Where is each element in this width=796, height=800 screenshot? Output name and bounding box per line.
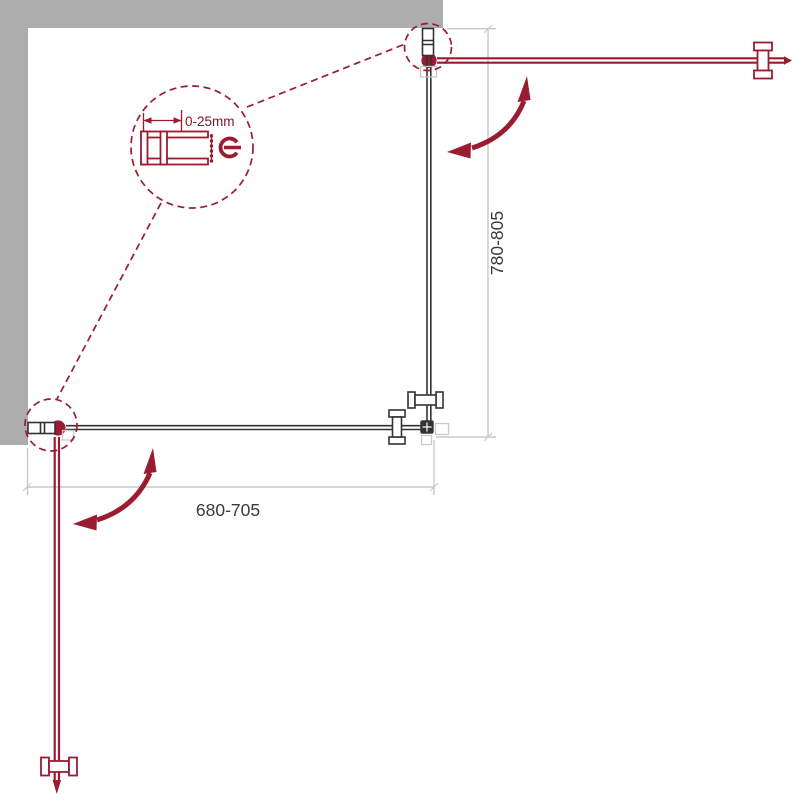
wall-profile-left [28, 423, 55, 434]
door-open-left-edge-tip [53, 780, 62, 794]
door-closed-vertical-glass [427, 55, 431, 423]
dimension-label-height: 780-805 [487, 211, 507, 275]
door-open-top-glass [437, 58, 784, 62]
handle-knob-vertical-door [408, 392, 443, 408]
doors-open-position [41, 43, 792, 795]
wall-top [0, 0, 443, 28]
detail-adjustment-label: 0-25mm [185, 114, 235, 129]
doors-closed-position [28, 29, 449, 445]
handle-knob-horizontal-door [389, 410, 405, 444]
corner-bracket-right [436, 424, 449, 435]
handle-knob-open-top-door [754, 43, 772, 79]
corner-bracket-bottom [422, 436, 432, 445]
detail-arrowhead-right [174, 117, 182, 123]
swing-arrow-top-door [447, 76, 531, 159]
detail-callouts [25, 24, 452, 452]
profile-bottom-flange [141, 159, 208, 165]
profile-left-cap [141, 132, 148, 165]
installation-diagram-page: 0-25mm 780-805 680-705 [0, 0, 796, 800]
corner-connector [420, 420, 433, 433]
profile-top-flange [141, 132, 208, 138]
detail-arrowhead-left [144, 117, 152, 123]
wall-profile-cross-section-detail: 0-25mm [141, 110, 241, 165]
handle-knob-open-left-door [41, 758, 77, 776]
dimension-label-width: 680-705 [196, 500, 260, 520]
shower-enclosure-diagram: 0-25mm 780-805 680-705 [0, 0, 796, 800]
callout-leader-top [247, 44, 405, 107]
wall-left [0, 0, 28, 445]
profile-divider [161, 132, 168, 165]
door-open-top-edge-tip [784, 56, 792, 65]
callout-leader-left [57, 203, 161, 399]
door-open-left-glass [55, 437, 59, 780]
door-closed-horizontal-glass [66, 426, 423, 430]
swing-arrow-left-door [73, 448, 157, 531]
wall-profile-top [423, 29, 434, 56]
